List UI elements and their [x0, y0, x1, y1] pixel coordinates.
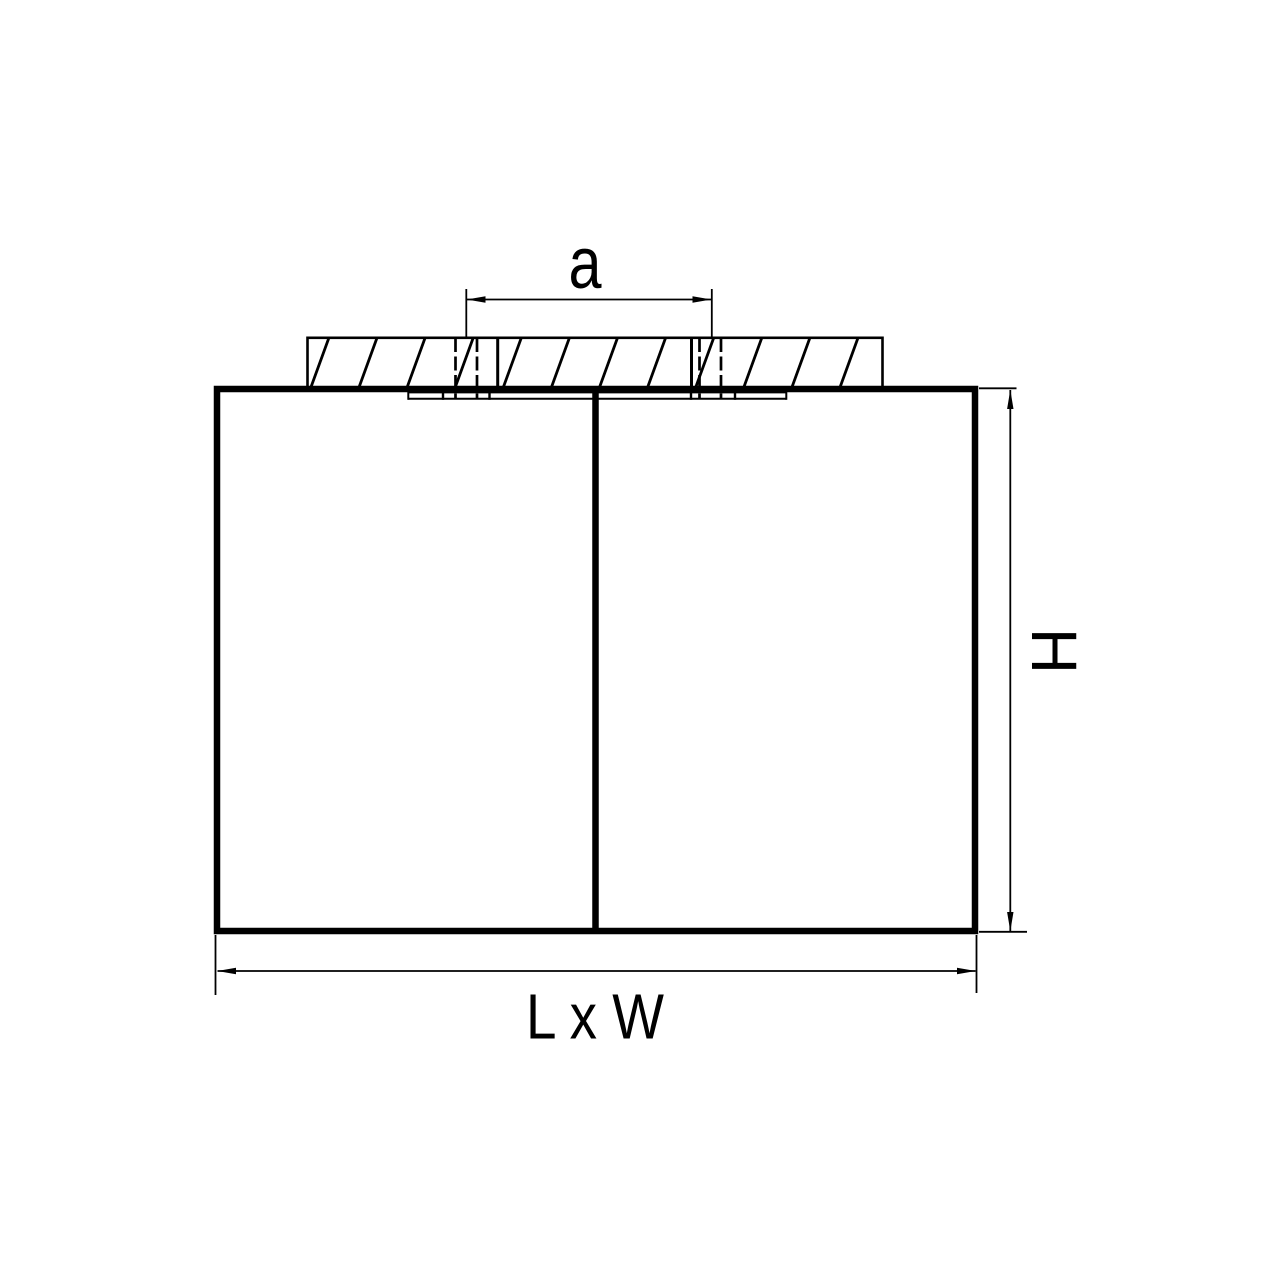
- svg-text:H: H: [1018, 628, 1090, 674]
- svg-text:L x W: L x W: [526, 981, 665, 1053]
- svg-text:a: a: [569, 224, 603, 304]
